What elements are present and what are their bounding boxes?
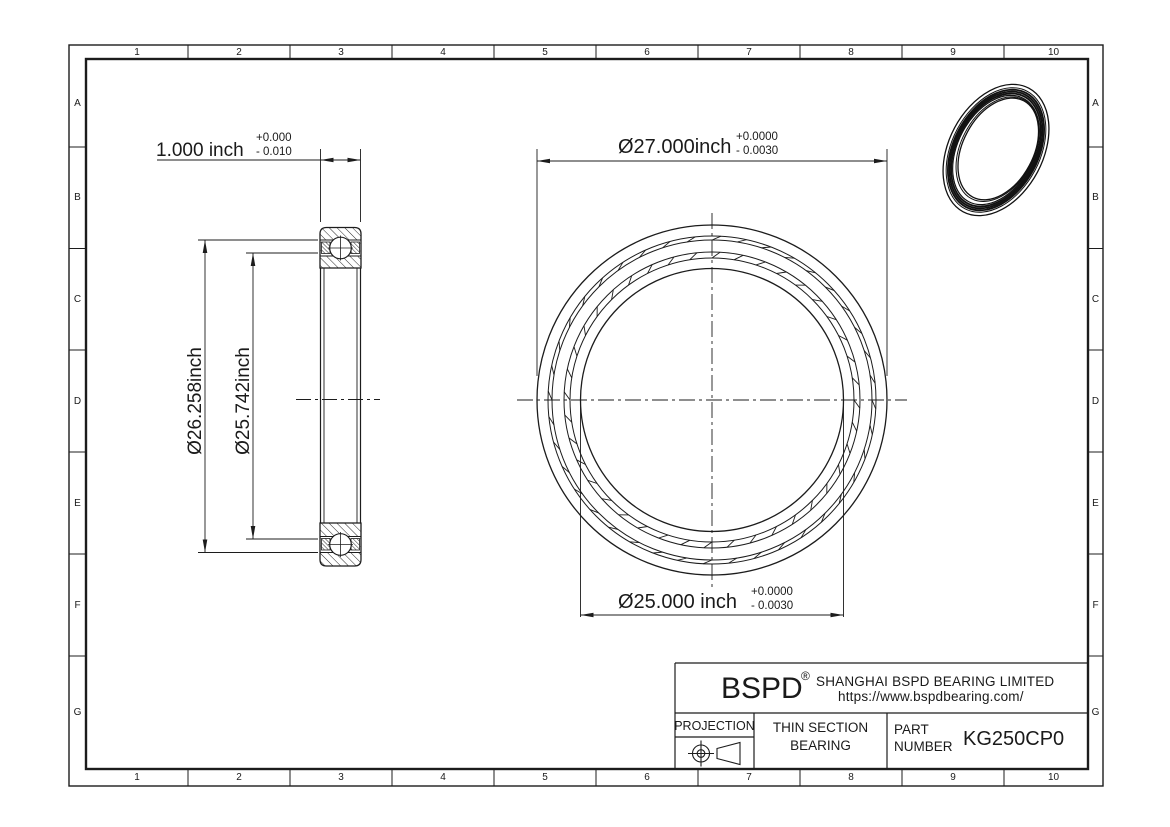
- grid-col-label: 1: [86, 769, 188, 786]
- dim-bore-tol-minus: - 0.0030: [751, 600, 793, 612]
- grid-row-label: F: [69, 554, 86, 656]
- grid-row-label: A: [1088, 59, 1103, 147]
- grid-col-label: 9: [902, 769, 1004, 786]
- grid-col-label: 10: [1004, 769, 1103, 786]
- grid-col-label: 5: [494, 769, 596, 786]
- grid-col-label: 1: [86, 45, 188, 59]
- projection-label: PROJECTION: [675, 716, 754, 736]
- dim-bore-tol-plus: +0.0000: [751, 586, 793, 598]
- grid-row-label: E: [69, 452, 86, 554]
- grid-col-label: 8: [800, 769, 902, 786]
- grid-col-label: 5: [494, 45, 596, 59]
- grid-col-label: 6: [596, 45, 698, 59]
- drawing-sheet: 1 2 3 4 5 6 7 8 9 10 1 2 3 4 5 6 7 8 9 1…: [0, 0, 1170, 827]
- dim-od-tol-plus: +0.0000: [736, 131, 778, 143]
- grid-col-label: 4: [392, 45, 494, 59]
- dim-outer-raceway-value: Ø26.258inch: [185, 336, 205, 466]
- grid-row-label: C: [69, 249, 86, 351]
- front-view: [517, 213, 907, 588]
- product-type-line1: THIN SECTION: [754, 718, 887, 736]
- company-logo: BSPD: [721, 672, 803, 707]
- isometric-view: [922, 66, 1071, 234]
- dim-od-value: Ø27.000inch: [618, 136, 731, 159]
- grid-col-label: 3: [290, 45, 392, 59]
- grid-col-label: 2: [188, 769, 290, 786]
- grid-row-label: G: [1088, 656, 1103, 769]
- grid-row-label: D: [69, 350, 86, 452]
- part-label-line1: PART: [894, 722, 929, 738]
- side-section-view: [296, 228, 380, 567]
- dimension-inner-raceway: [246, 253, 318, 539]
- part-number: KG250CP0: [963, 728, 1064, 751]
- grid-col-label: 8: [800, 45, 902, 59]
- projection-symbol-icon: [688, 741, 740, 767]
- grid-col-label: 9: [902, 45, 1004, 59]
- grid-row-label: G: [69, 656, 86, 769]
- grid-col-label: 7: [698, 45, 800, 59]
- dimension-outer-raceway: [198, 240, 318, 553]
- grid-row-label: B: [1088, 147, 1103, 249]
- company-website: https://www.bspdbearing.com/: [838, 689, 1024, 705]
- grid-col-label: 6: [596, 769, 698, 786]
- company-name: SHANGHAI BSPD BEARING LIMITED: [816, 674, 1054, 690]
- dim-width-value: 1.000 inch: [156, 140, 244, 162]
- grid-row-label: C: [1088, 249, 1103, 351]
- grid-col-label: 4: [392, 769, 494, 786]
- grid-col-label: 3: [290, 769, 392, 786]
- registered-mark: ®: [801, 670, 810, 684]
- dim-width-tol-minus: - 0.010: [256, 146, 292, 158]
- dim-od-tol-minus: - 0.0030: [736, 145, 778, 157]
- grid-row-label: F: [1088, 554, 1103, 656]
- grid-col-label: 2: [188, 45, 290, 59]
- grid-row-label: B: [69, 147, 86, 249]
- part-label-line2: NUMBER: [894, 739, 953, 755]
- grid-row-label: D: [1088, 350, 1103, 452]
- grid-row-label: E: [1088, 452, 1103, 554]
- product-type-line2: BEARING: [754, 736, 887, 754]
- grid-col-label: 10: [1004, 45, 1103, 59]
- dim-bore-value: Ø25.000 inch: [618, 591, 737, 614]
- grid-col-label: 7: [698, 769, 800, 786]
- dim-inner-raceway-value: Ø25.742inch: [233, 336, 253, 466]
- dim-width-tol-plus: +0.000: [256, 132, 292, 144]
- grid-row-label: A: [69, 59, 86, 147]
